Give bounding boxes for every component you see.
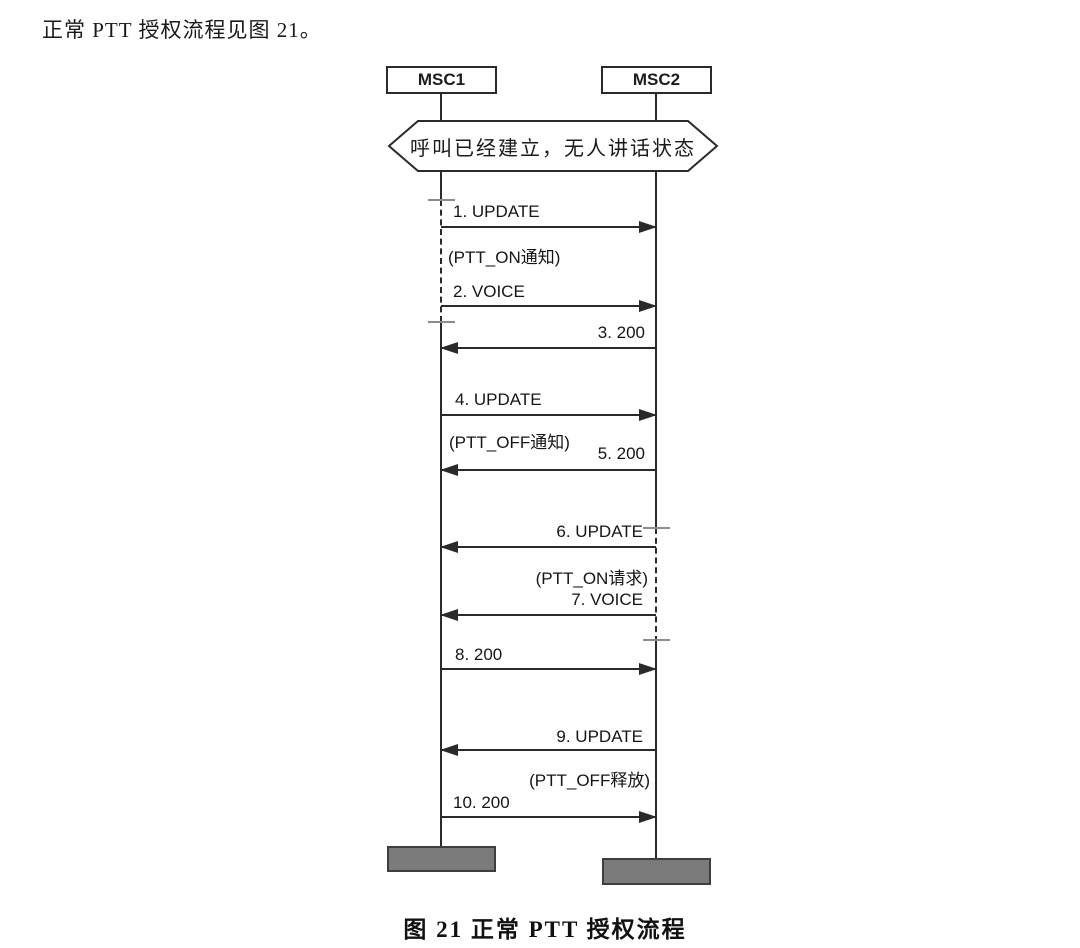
label-msg-8: 8. 200	[455, 645, 502, 665]
label-msg-10: 10. 200	[453, 793, 510, 813]
actor-label-msc2: MSC2	[633, 70, 680, 90]
figure-caption: 图 21 正常 PTT 授权流程	[340, 910, 750, 944]
label-msg-7: 7. VOICE	[441, 590, 643, 610]
arrow-msg-1	[441, 226, 656, 228]
label-msg-2: 2. VOICE	[453, 282, 525, 302]
label-msg-9: 9. UPDATE	[441, 727, 643, 747]
note-msg-6: (PTT_ON请求)	[441, 564, 648, 589]
arrow-msg-2	[441, 305, 656, 307]
document-page: 正常 PTT 授权流程见图 21。 MSC1 MSC2 呼叫已经建立，无人讲话状…	[0, 0, 1080, 948]
arrow-msg-3	[441, 347, 656, 349]
arrow-msg-4	[441, 414, 656, 416]
lifeline-msc1-dashed	[440, 200, 442, 322]
actor-box-msc2: MSC2	[601, 66, 712, 94]
end-bar-msc1	[387, 846, 496, 872]
tick-msc1-start	[428, 199, 455, 201]
arrow-msg-5	[441, 469, 656, 471]
arrow-msg-10	[441, 816, 656, 818]
intro-text: 正常 PTT 授权流程见图 21。	[42, 16, 322, 45]
arrow-msg-6	[441, 546, 656, 548]
label-msg-4: 4. UPDATE	[455, 390, 542, 410]
arrow-msg-9	[441, 749, 656, 751]
label-msg-6: 6. UPDATE	[441, 522, 643, 542]
note-msg-9: (PTT_OFF释放)	[441, 766, 650, 791]
arrow-msg-8	[441, 668, 656, 670]
end-bar-msc2	[602, 858, 711, 885]
arrow-msg-7	[441, 614, 656, 616]
actor-box-msc1: MSC1	[386, 66, 497, 94]
label-msg-1: 1. UPDATE	[453, 202, 540, 222]
tick-msc2-end	[643, 639, 670, 641]
tick-msc2-start	[643, 527, 670, 529]
note-msg-1: (PTT_ON通知)	[448, 243, 560, 268]
label-msg-3: 3. 200	[441, 323, 645, 343]
state-note-text: 呼叫已经建立，无人讲话状态	[386, 118, 720, 174]
actor-label-msc1: MSC1	[418, 70, 465, 90]
label-msg-5: 5. 200	[441, 444, 645, 464]
